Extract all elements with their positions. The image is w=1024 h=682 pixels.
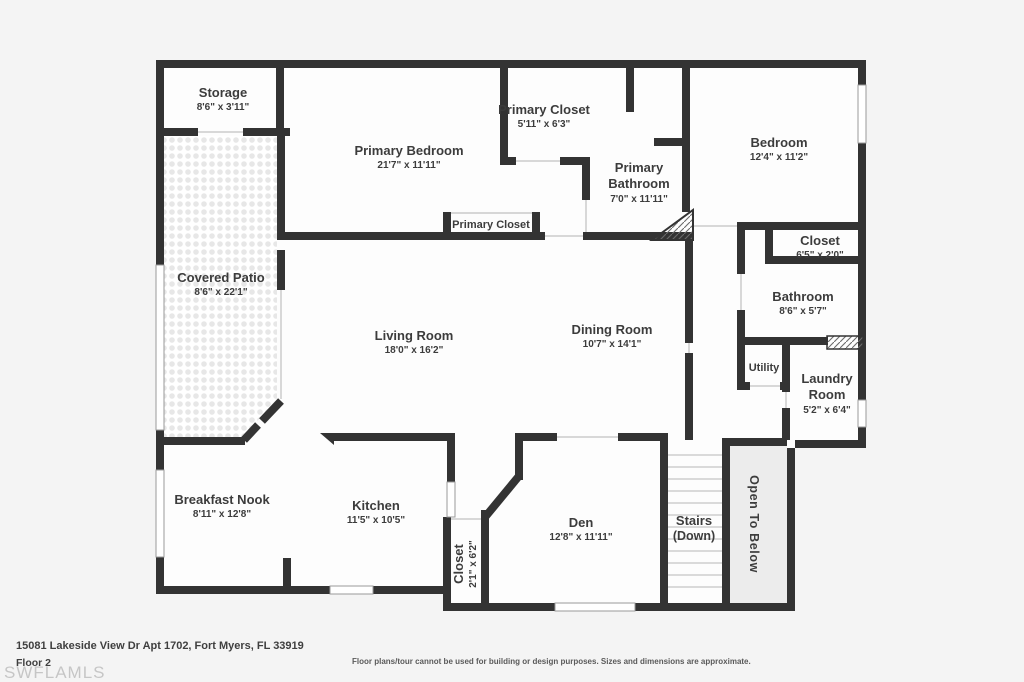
disclaimer-text: Floor plans/tour cannot be used for buil… (352, 657, 751, 666)
floorplan-canvas: Storage 8'6" x 3'11" Primary Bedroom 21'… (0, 0, 1024, 682)
room-label-bedroom: Bedroom 12'4" x 11'2" (750, 135, 808, 165)
room-label-utility: Utility (749, 362, 780, 376)
room-label-bathroom: Bathroom 8'6" x 5'7" (772, 289, 833, 319)
room-label-open-to-below: Open To Below (745, 475, 761, 573)
room-label-closet-kitchen: Closet 2'1" x 6'2" (451, 540, 481, 588)
room-label-living-room: Living Room 18'0" x 16'2" (375, 328, 454, 358)
room-label-den: Den 12'8" x 11'11" (549, 515, 612, 545)
room-label-primary-closet: Primary Closet 5'11" x 6'3" (498, 102, 590, 132)
room-label-kitchen: Kitchen 11'5" x 10'5" (347, 498, 405, 528)
room-label-laundry-room: Laundry Room 5'2" x 6'4" (793, 371, 861, 417)
property-address: 15081 Lakeside View Dr Apt 1702, Fort My… (16, 640, 304, 652)
room-label-dining-room: Dining Room 10'7" x 14'1" (572, 322, 653, 352)
room-label-storage: Storage 8'6" x 3'11" (197, 85, 250, 115)
room-label-primary-bathroom: Primary Bathroom 7'0" x 11'11" (593, 160, 685, 206)
room-label-primary-bedroom: Primary Bedroom 21'7" x 11'11" (354, 143, 463, 173)
room-label-covered-patio: Covered Patio 8'6" x 22'1" (177, 270, 264, 300)
room-label-primary-closet-2: Primary Closet (452, 219, 530, 233)
mls-watermark: SWFLAMLS (4, 663, 106, 682)
room-label-closet-bedroom: Closet 6'5" x 2'0" (796, 233, 844, 263)
room-label-stairs: Stairs (Down) (673, 513, 715, 545)
room-label-breakfast-nook: Breakfast Nook 8'11" x 12'8" (174, 492, 269, 522)
